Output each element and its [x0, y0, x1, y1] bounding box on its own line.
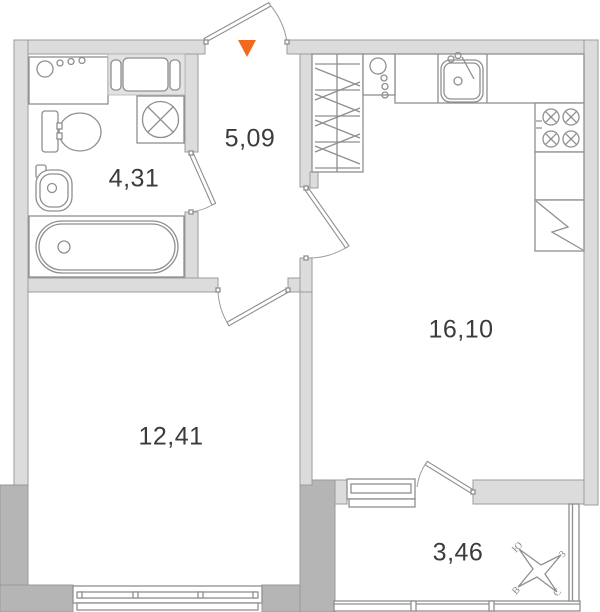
kitchen-door — [304, 186, 349, 260]
kitchen-window-sill — [349, 499, 415, 507]
kitchen-sink-icon — [441, 53, 483, 103]
compass-north-label: С — [551, 586, 564, 599]
wardrobe-step-wall — [310, 172, 318, 188]
bedroom-door — [216, 288, 290, 326]
fridge-icon — [535, 200, 584, 251]
boiler-icon — [363, 54, 395, 98]
room-area-label-bedroom: 12,41 — [138, 423, 203, 452]
balcony-door-leaf — [425, 461, 474, 493]
bedroom-kitchen-divider-wall — [300, 292, 312, 485]
bedroom-door-swing-arc — [218, 291, 228, 324]
floor-plan-drawing: Ю З В С — [0, 0, 600, 612]
bedroom-window — [73, 586, 262, 610]
compass-star — [518, 549, 561, 592]
wardrobe-icon — [312, 54, 363, 172]
kitchen-fixtures — [312, 53, 584, 252]
balcony-door — [417, 461, 475, 494]
floor-plan: Ю З В С 5,09 4,31 16,10 12,41 3,46 — [0, 0, 600, 612]
hallway-right-wall-upper — [300, 54, 312, 187]
entrance-door — [204, 3, 289, 44]
kitchen-counter-right — [535, 152, 584, 200]
top-wall-right — [287, 40, 598, 54]
entrance-door-swing-arc — [271, 6, 287, 42]
entrance-door-leaf — [204, 3, 271, 42]
compass-south-label: Ю — [510, 540, 525, 555]
room-area-label-bathroom: 4,31 — [109, 165, 160, 194]
cabinet-icon — [123, 58, 168, 91]
entrance-marker-icon — [238, 40, 256, 57]
compass-icon: Ю З В С — [510, 540, 568, 599]
balcony-door-swing-arc — [417, 463, 426, 487]
kitchen-door-leaf — [304, 187, 349, 248]
balcony-side-glazing — [569, 504, 579, 601]
bathroom-right-wall-lower — [185, 212, 198, 278]
bedroom-top-wall-left — [28, 278, 218, 292]
kitchen-door-swing-arc — [306, 247, 347, 258]
room-area-label-balcony: 3,46 — [433, 539, 484, 568]
bathroom-door-leaf — [189, 152, 215, 205]
toilet-icon — [42, 111, 101, 152]
entrance-door-hinge — [204, 40, 208, 44]
kitchen-window — [347, 479, 415, 507]
compass-east-label: В — [510, 584, 523, 597]
room-area-label-hallway: 5,09 — [225, 125, 276, 154]
top-wall-left — [14, 40, 205, 54]
washer-counter — [29, 57, 108, 104]
kitchen-counter — [395, 54, 584, 103]
bedroom-door-leaf — [227, 288, 289, 325]
left-wall — [14, 40, 28, 485]
washing-machine-icon — [137, 96, 184, 143]
bathtub-icon — [29, 216, 184, 277]
room-area-label-kitchen-living: 16,10 — [428, 316, 493, 345]
cabinet-side-left — [111, 60, 121, 90]
stove-icon — [535, 103, 584, 152]
sink-icon — [36, 165, 72, 211]
cabinet-niche — [108, 54, 185, 95]
hallway-right-wall-lower — [300, 258, 312, 292]
bathroom-fixtures — [29, 54, 185, 277]
bottom-wall-left — [0, 585, 73, 612]
balcony-wall-left-segment — [335, 480, 347, 504]
bathroom-right-wall-upper — [185, 54, 198, 152]
interior-doors — [189, 151, 349, 326]
balcony-left-wall — [300, 480, 335, 612]
balcony-wall-right-segment — [473, 480, 584, 504]
bedroom-window-sill — [77, 603, 258, 610]
right-wall — [584, 40, 598, 505]
bathroom-door — [189, 151, 216, 214]
entrance-door-jamb — [285, 40, 289, 44]
cabinet-side-right — [170, 60, 180, 90]
bathroom-door-swing-arc — [191, 204, 214, 212]
